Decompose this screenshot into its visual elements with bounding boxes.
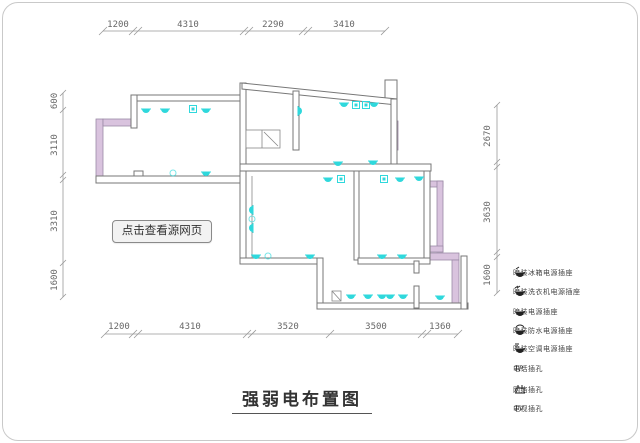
network-jack-icon [513,383,527,395]
floor-plan-image: 1200 4310 2290 3410 1200 4310 3520 3500 … [0,0,640,443]
socket-symbol [201,109,211,113]
panel-symbol [338,176,345,183]
legend-item: 暗装冰箱电源插座 [513,266,573,280]
legend-item: 网络插孔 [513,383,543,397]
dim-left-3: 3310 [49,199,61,243]
view-source-page-button[interactable]: 点击查看源网页 [112,220,212,243]
dim-bottom-3: 3520 [266,321,310,333]
legend-item: 暗装洗衣机电源插座 [513,285,581,299]
dim-right-1: 2670 [482,114,494,158]
legend-item: TV 电视插孔 [513,402,543,416]
socket-symbol [385,295,395,299]
dim-right-3: 1600 [482,253,494,297]
socket-symbol [398,295,408,299]
socket-waterproof-icon [513,324,527,336]
dim-top-2: 4310 [166,19,210,31]
socket-fridge-icon [513,266,527,278]
dim-bottom-2: 4310 [168,321,212,333]
legend-item: 暗装空调电源插座 [513,342,573,356]
floor-plan-canvas [0,0,640,443]
dim-top-3: 2290 [251,19,295,31]
dim-top-4: 3410 [322,19,366,31]
svg-text:TV: TV [514,404,524,413]
socket-symbol [414,177,424,181]
svg-text:TP: TP [514,364,523,373]
socket-symbol [160,109,170,113]
socket-symbol [249,205,253,215]
jack-symbol [170,170,176,176]
drawing-title: 强弱电布置图 [232,385,372,414]
socket-symbol [435,296,445,300]
dim-left-1: 600 [49,79,61,123]
socket-symbol [141,109,151,113]
socket-symbol [339,103,349,107]
dim-top-1: 1200 [96,19,140,31]
phone-jack-icon: TP [513,362,527,374]
socket-symbol [369,103,379,107]
socket-symbol [249,223,253,233]
socket-washer-icon [513,285,527,297]
legend-item: TP 电话插孔 [513,362,543,376]
legend-item: 暗装电源插座 [513,305,558,319]
panel-symbol [353,102,360,109]
dim-bottom-5: 1360 [418,321,462,333]
socket-symbol [201,172,211,176]
dim-bottom-1: 1200 [97,321,141,333]
panel-symbol [190,106,197,113]
interior-details [246,130,341,301]
window-walls [96,84,459,303]
dim-left-4: 1600 [49,258,61,302]
socket-symbol [298,106,302,116]
socket-ac-icon [513,342,527,354]
dim-right-2: 3630 [482,190,494,234]
tv-jack-icon: TV [513,402,527,414]
socket-symbol [395,178,405,182]
legend-item: 暗装防水电源插座 [513,324,573,338]
socket-symbol [363,295,373,299]
walls [96,80,468,309]
socket-symbol [346,295,356,299]
socket-symbol [323,178,333,182]
socket-icon [513,305,527,317]
socket-symbol [377,295,387,299]
dim-bottom-4: 3500 [354,321,398,333]
dim-left-2: 3110 [49,123,61,167]
panel-symbol [381,176,388,183]
